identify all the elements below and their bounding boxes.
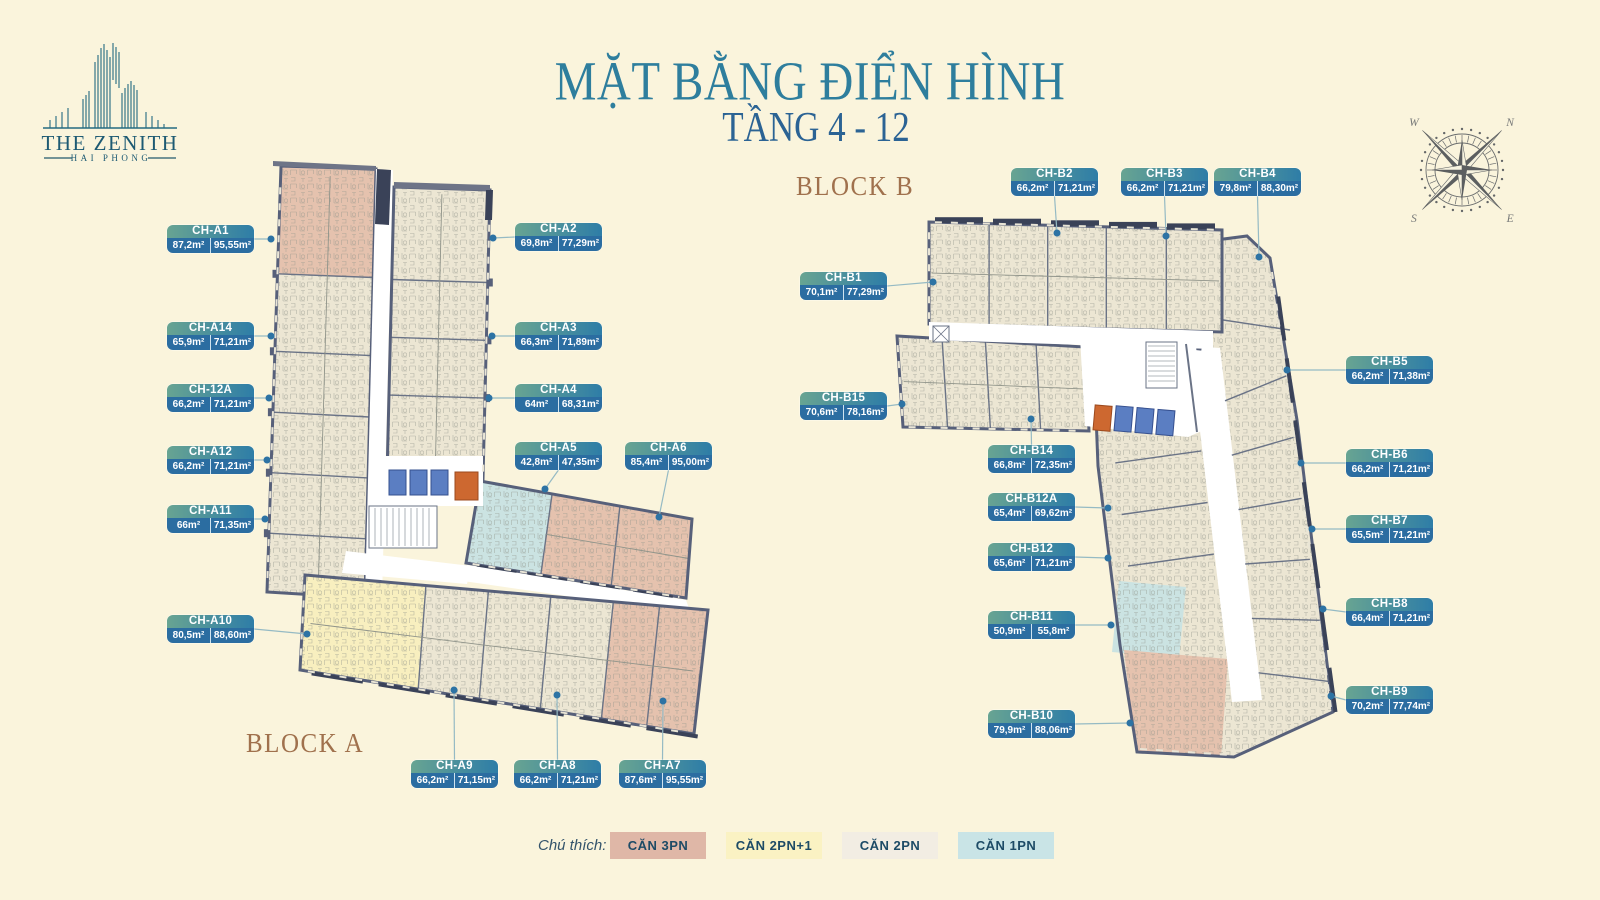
svg-text:E: E bbox=[1506, 213, 1514, 225]
svg-text:N: N bbox=[1505, 117, 1515, 129]
svg-text:W: W bbox=[1409, 117, 1420, 129]
svg-text:S: S bbox=[1411, 213, 1417, 225]
